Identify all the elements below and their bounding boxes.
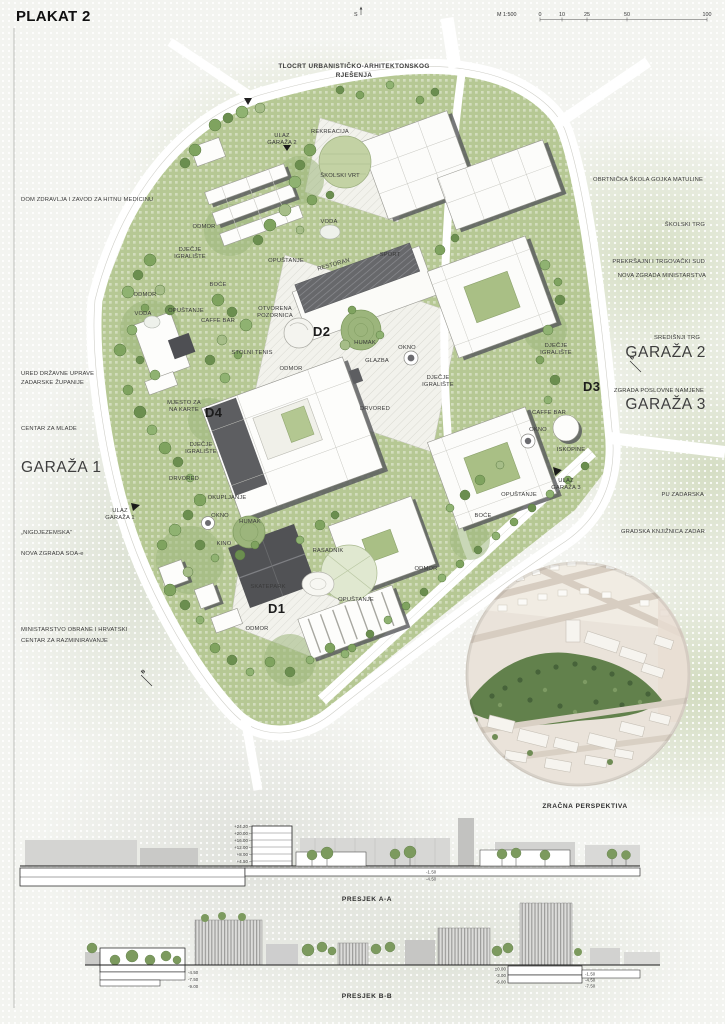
- label-skolski-vrt: ŠKOLSKI VRT: [320, 172, 360, 179]
- page-title: PLAKAT 2: [16, 8, 91, 25]
- label-ministarstvo-2: CENTAR ZA RAZMINIRAVANJE: [21, 638, 108, 644]
- label-pu-zadarska: PU ZADARSKA: [661, 492, 704, 498]
- label-drvored-2: DRVORED: [169, 476, 199, 482]
- label-knjiznica: GRADSKA KNJIŽNICA ZADAR: [621, 527, 705, 535]
- elev-b-m2: -6.00: [496, 980, 507, 985]
- label-voda-2: VODA: [134, 311, 151, 317]
- label-caffe-bar-2: CAFFE BAR: [532, 410, 566, 416]
- label-kino: KINO: [217, 541, 232, 547]
- label-odmor-5: ODMOR: [415, 566, 438, 572]
- north-indicator: S: [354, 12, 358, 18]
- zone-d2: D2: [313, 324, 330, 339]
- label-humak-2: HUMAK: [239, 519, 261, 525]
- label-ministarstvo-1: MINISTARSTVO OBRANE I HRVATSKI: [21, 627, 128, 633]
- label-centar-za-mlade: CENTAR ZA MLADE: [21, 426, 77, 432]
- label-djecje-3b: IGRALIŠTE: [185, 448, 217, 455]
- label-skolski-trg: ŠKOLSKI TRG: [665, 221, 706, 228]
- elev-b-l1: -7.50: [188, 977, 199, 982]
- section-a-caption: PRESJEK A-A: [342, 896, 392, 903]
- label-garaza-1: GARAŽA 1: [21, 459, 102, 476]
- label-boce-2: BOĆE: [474, 512, 491, 519]
- label-djecje-2b: IGRALIŠTE: [422, 381, 454, 388]
- elev-a-3: +12.00: [234, 845, 248, 850]
- label-djecje-1a: DJEČJE: [179, 246, 202, 253]
- label-garaza-3: GARAŽA 3: [625, 396, 706, 413]
- label-humak-1: HUMAK: [354, 340, 376, 346]
- label-ured-1: URED DRŽAVNE UPRAVE: [21, 369, 94, 377]
- elev-a-0: +24.20: [234, 824, 248, 829]
- label-prekrsajni-sud: PREKRŠAJNI I TRGOVAČKI SUD: [612, 258, 705, 265]
- label-nigdjezemska: „NIGDJEZEMSKA“: [21, 530, 72, 536]
- label-opustanje-1: OPUŠTANJE: [268, 257, 304, 264]
- elev-b-m0: ±0.00: [495, 967, 507, 972]
- label-okno-3: OKNO: [529, 427, 547, 433]
- label-ured-2: ZADARSKE ŽUPANIJE: [21, 378, 84, 386]
- label-zgrada-poslovne: ZGRADA POSLOVNE NAMJENE: [614, 388, 704, 394]
- elev-b-r2: -7.50: [585, 984, 596, 989]
- elev-a-4: +8.00: [237, 852, 249, 857]
- label-boce-1: BOĆE: [209, 281, 226, 288]
- label-djecje-4b: IGRALIŠTE: [540, 349, 572, 356]
- scale-label: M 1:500: [497, 12, 516, 18]
- perspective-caption: ZRAČNA PERSPEKTIVA: [542, 801, 627, 810]
- label-skatepark: SKATEPARK: [250, 584, 285, 590]
- elev-b-m1: -3.00: [496, 973, 507, 978]
- label-garaza-2: GARAŽA 2: [625, 344, 706, 361]
- section-b: -4.50 -7.50 -9.00 ±0.00 -3.00 -6.00 -1.5…: [85, 903, 660, 1000]
- elev-b-l0: -4.50: [188, 970, 199, 975]
- label-nova-zgrada-ministarstva: NOVA ZGRADA MINISTARSTVA: [618, 273, 706, 279]
- section-a: +24.20 +20.00 +16.00 +12.00 +8.00 +4.50 …: [20, 818, 640, 903]
- label-mjesto-a: MJESTO ZA: [167, 400, 201, 406]
- label-ulaz-garaza2-2: GARAŽA 2: [267, 138, 297, 146]
- label-otvorena-a: OTVORENA: [258, 306, 292, 312]
- label-odmor-4: ODMOR: [246, 626, 269, 632]
- section-b-drawing: -4.50 -7.50 -9.00 ±0.00 -3.00 -6.00 -1.5…: [85, 903, 660, 989]
- label-opustanje-3: OPUŠTANJE: [338, 596, 374, 603]
- label-obrtnicka-skola: OBRTNIČKA ŠKOLA GOJKA MATULINE: [593, 176, 703, 183]
- label-otvorena-b: POZORNICA: [257, 313, 293, 319]
- label-rasadnik: RASADNIK: [313, 548, 344, 554]
- label-sredisnji-trg: SREDIŠNJI TRG: [654, 334, 700, 341]
- label-iskopine: ISKOPINE: [557, 447, 586, 453]
- label-djecje-2a: DJEČJE: [427, 374, 450, 381]
- label-dom-zdravlja: DOM ZDRAVLJA I ZAVOD ZA HITNU MEDICINU: [21, 197, 153, 203]
- label-okupljanje: OKUPLJANJE: [208, 495, 247, 501]
- label-mjesto-b: NA KARTE: [169, 407, 199, 413]
- scale-tick-0: 0: [539, 12, 542, 18]
- section-b-marker-1: B: [140, 668, 147, 675]
- elev-b-r1: -4.50: [585, 978, 596, 983]
- label-stolni-tenis: STOLNI TENIS: [231, 350, 272, 356]
- label-sport: SPORT: [380, 252, 401, 258]
- elev-a-1: +20.00: [234, 831, 248, 836]
- zone-d4: D4: [205, 405, 223, 420]
- zone-d3: D3: [583, 379, 600, 394]
- label-okno-2: OKNO: [211, 513, 229, 519]
- label-ulaz-garaza2-1: ULAZ: [274, 133, 290, 139]
- north-arrow-head-icon: [360, 7, 363, 10]
- label-ulaz-garaza1-2: GARAŽA 1: [105, 513, 135, 521]
- aerial-perspective: ZRAČNA PERSPEKTIVA: [457, 538, 703, 810]
- section-a-drawing: +24.20 +20.00 +16.00 +12.00 +8.00 +4.50 …: [20, 818, 640, 886]
- label-odmor-3: ODMOR: [280, 366, 303, 372]
- label-djecje-4a: DJEČJE: [545, 342, 568, 349]
- label-caffe-bar-1: CAFFE BAR: [201, 318, 235, 324]
- elev-b-r0: -1.50: [585, 972, 596, 977]
- label-odmor-1: ODMOR: [193, 224, 216, 230]
- label-djecje-3a: DJEČJE: [190, 441, 213, 448]
- scale-bar: M 1:500 0 10 25 50 100: [497, 12, 712, 22]
- elev-a-5: +4.50: [237, 859, 249, 864]
- elev-a-2: +16.00: [234, 838, 248, 843]
- scale-tick-50: 50: [624, 12, 630, 18]
- label-rekreacija: REKREACIJA: [311, 129, 349, 135]
- map-title-line1: TLOCRT URBANISTIČKO-ARHITEKTONSKOG: [278, 61, 429, 70]
- section-b-caption: PRESJEK B-B: [342, 993, 392, 1000]
- elev-b-l2: -9.00: [188, 984, 199, 989]
- label-opustanje-4: OPUŠTANJE: [501, 491, 537, 498]
- label-glazba: GLAZBA: [365, 358, 389, 364]
- zone-d1: D1: [268, 601, 285, 616]
- poster: PLAKAT 2 S M 1:500 0 10 25 50 100: [0, 0, 725, 1024]
- label-ulaz-garaza3-2: GARAŽA 3: [551, 483, 581, 491]
- label-ulaz-garaza1-1: ULAZ: [112, 508, 128, 514]
- poster-canvas: PLAKAT 2 S M 1:500 0 10 25 50 100: [0, 0, 725, 1024]
- map-title-line2: RJEŠENJA: [336, 70, 373, 79]
- elev-a-r0: -1.50: [426, 870, 437, 875]
- scale-tick-25: 25: [584, 12, 590, 18]
- label-opustanje-2: OPUŠTANJE: [168, 307, 204, 314]
- label-ulaz-garaza3-1: ULAZ: [558, 478, 574, 484]
- label-drvored-1: DRVORED: [360, 406, 390, 412]
- label-djecje-1b: IGRALIŠTE: [174, 253, 206, 260]
- label-voda-1: VODA: [320, 219, 337, 225]
- elev-a-r1: -4.50: [426, 877, 437, 882]
- label-nova-zgrada-soa: NOVA ZGRADA SOA-e: [21, 551, 84, 557]
- label-odmor-2: ODMOR: [134, 292, 157, 298]
- label-okno-1: OKNO: [398, 345, 416, 351]
- scale-tick-10: 10: [559, 12, 565, 18]
- scale-tick-100: 100: [703, 12, 712, 18]
